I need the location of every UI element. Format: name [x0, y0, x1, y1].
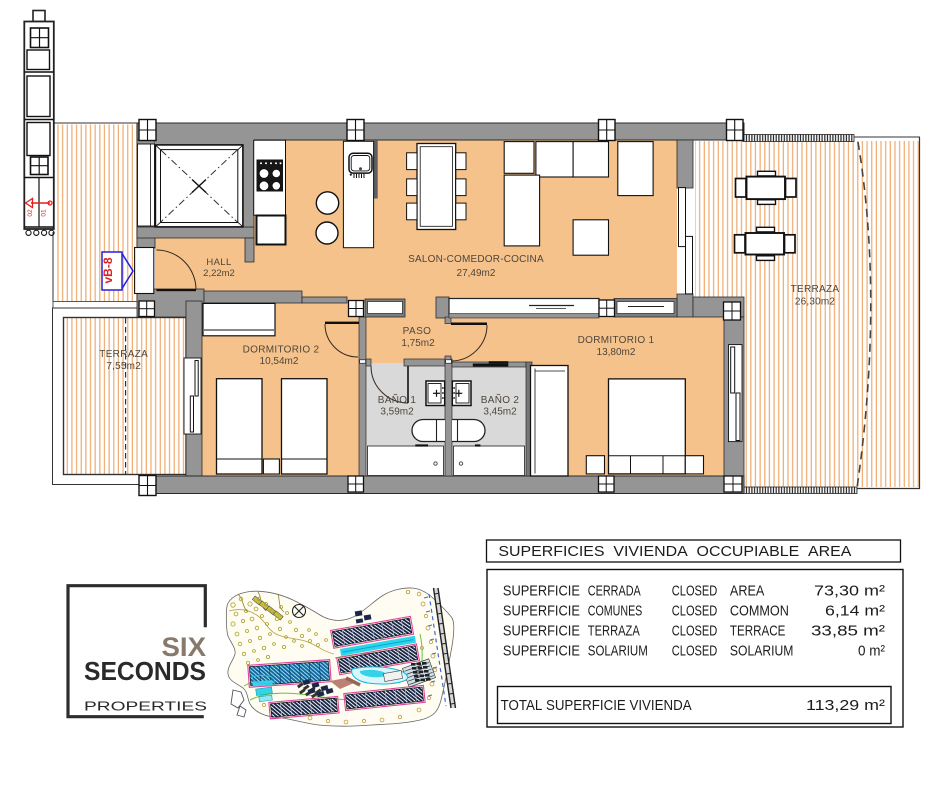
svg-text:SALON-COMEDOR-COCINA: SALON-COMEDOR-COCINA: [408, 254, 544, 265]
svg-text:113,29 m²: 113,29 m²: [806, 697, 885, 714]
svg-text:73,30 m²: 73,30 m²: [814, 583, 885, 600]
svg-text:26,30m2: 26,30m2: [795, 297, 836, 308]
svg-text:TERRAZA: TERRAZA: [99, 349, 148, 360]
svg-text:02: 02: [27, 209, 34, 217]
svg-text:SUPERFICIE: SUPERFICIE: [503, 583, 580, 600]
svg-text:PASO: PASO: [403, 326, 432, 337]
svg-text:CLOSED: CLOSED: [672, 623, 718, 640]
svg-text:TERRAZA: TERRAZA: [791, 284, 840, 295]
svg-text:0 m²: 0 m²: [858, 643, 885, 660]
svg-text:13,80m2: 13,80m2: [597, 347, 636, 358]
svg-text:DORMITORIO 1: DORMITORIO 1: [578, 335, 655, 346]
svg-text:vB-8: vB-8: [101, 257, 115, 283]
svg-text:3,59m2: 3,59m2: [380, 407, 414, 418]
svg-text:CERRADA: CERRADA: [588, 583, 641, 600]
svg-text:SUPERFICIE: SUPERFICIE: [503, 623, 580, 640]
svg-text:TERRACE: TERRACE: [730, 623, 786, 640]
svg-text:TERRAZA: TERRAZA: [588, 623, 640, 640]
svg-text:6,14 m²: 6,14 m²: [825, 603, 885, 620]
svg-text:33,85 m²: 33,85 m²: [811, 623, 885, 640]
svg-text:CLOSED: CLOSED: [672, 643, 718, 660]
svg-text:SUPERFICIES VIVIENDA OCCUPIA: SUPERFICIES VIVIENDA OCCUPIABLE AREA: [498, 544, 851, 560]
svg-text:BAÑO 1: BAÑO 1: [378, 393, 417, 406]
svg-text:3,45m2: 3,45m2: [483, 407, 517, 418]
svg-text:1,75m2: 1,75m2: [401, 338, 435, 349]
svg-text:BAÑO 2: BAÑO 2: [481, 393, 520, 406]
svg-text:AREA: AREA: [730, 583, 765, 600]
svg-text:SUPERFICIE: SUPERFICIE: [503, 643, 580, 660]
svg-text:27,49m2: 27,49m2: [457, 268, 496, 279]
svg-text:01: 01: [41, 209, 48, 217]
svg-text:10,54m2: 10,54m2: [260, 356, 299, 367]
svg-text:COMUNES: COMUNES: [588, 603, 643, 620]
svg-text:SOLARIUM: SOLARIUM: [730, 643, 794, 660]
svg-text:CLOSED: CLOSED: [672, 603, 718, 620]
svg-text:TOTAL SUPERFICIE VIVIENDA: TOTAL SUPERFICIE VIVIENDA: [501, 697, 692, 714]
svg-text:COMMON: COMMON: [730, 603, 789, 620]
svg-text:7,55m2: 7,55m2: [106, 361, 141, 372]
svg-text:DORMITORIO 2: DORMITORIO 2: [243, 345, 320, 356]
svg-text:HALL: HALL: [206, 257, 231, 268]
svg-text:SOLARIUM: SOLARIUM: [588, 643, 648, 660]
svg-text:SUPERFICIE: SUPERFICIE: [503, 603, 580, 620]
svg-text:SECONDS: SECONDS: [84, 656, 206, 686]
svg-text:PROPERTIES: PROPERTIES: [84, 700, 207, 714]
svg-text:2,22m2: 2,22m2: [203, 268, 235, 279]
svg-text:CLOSED: CLOSED: [672, 583, 718, 600]
